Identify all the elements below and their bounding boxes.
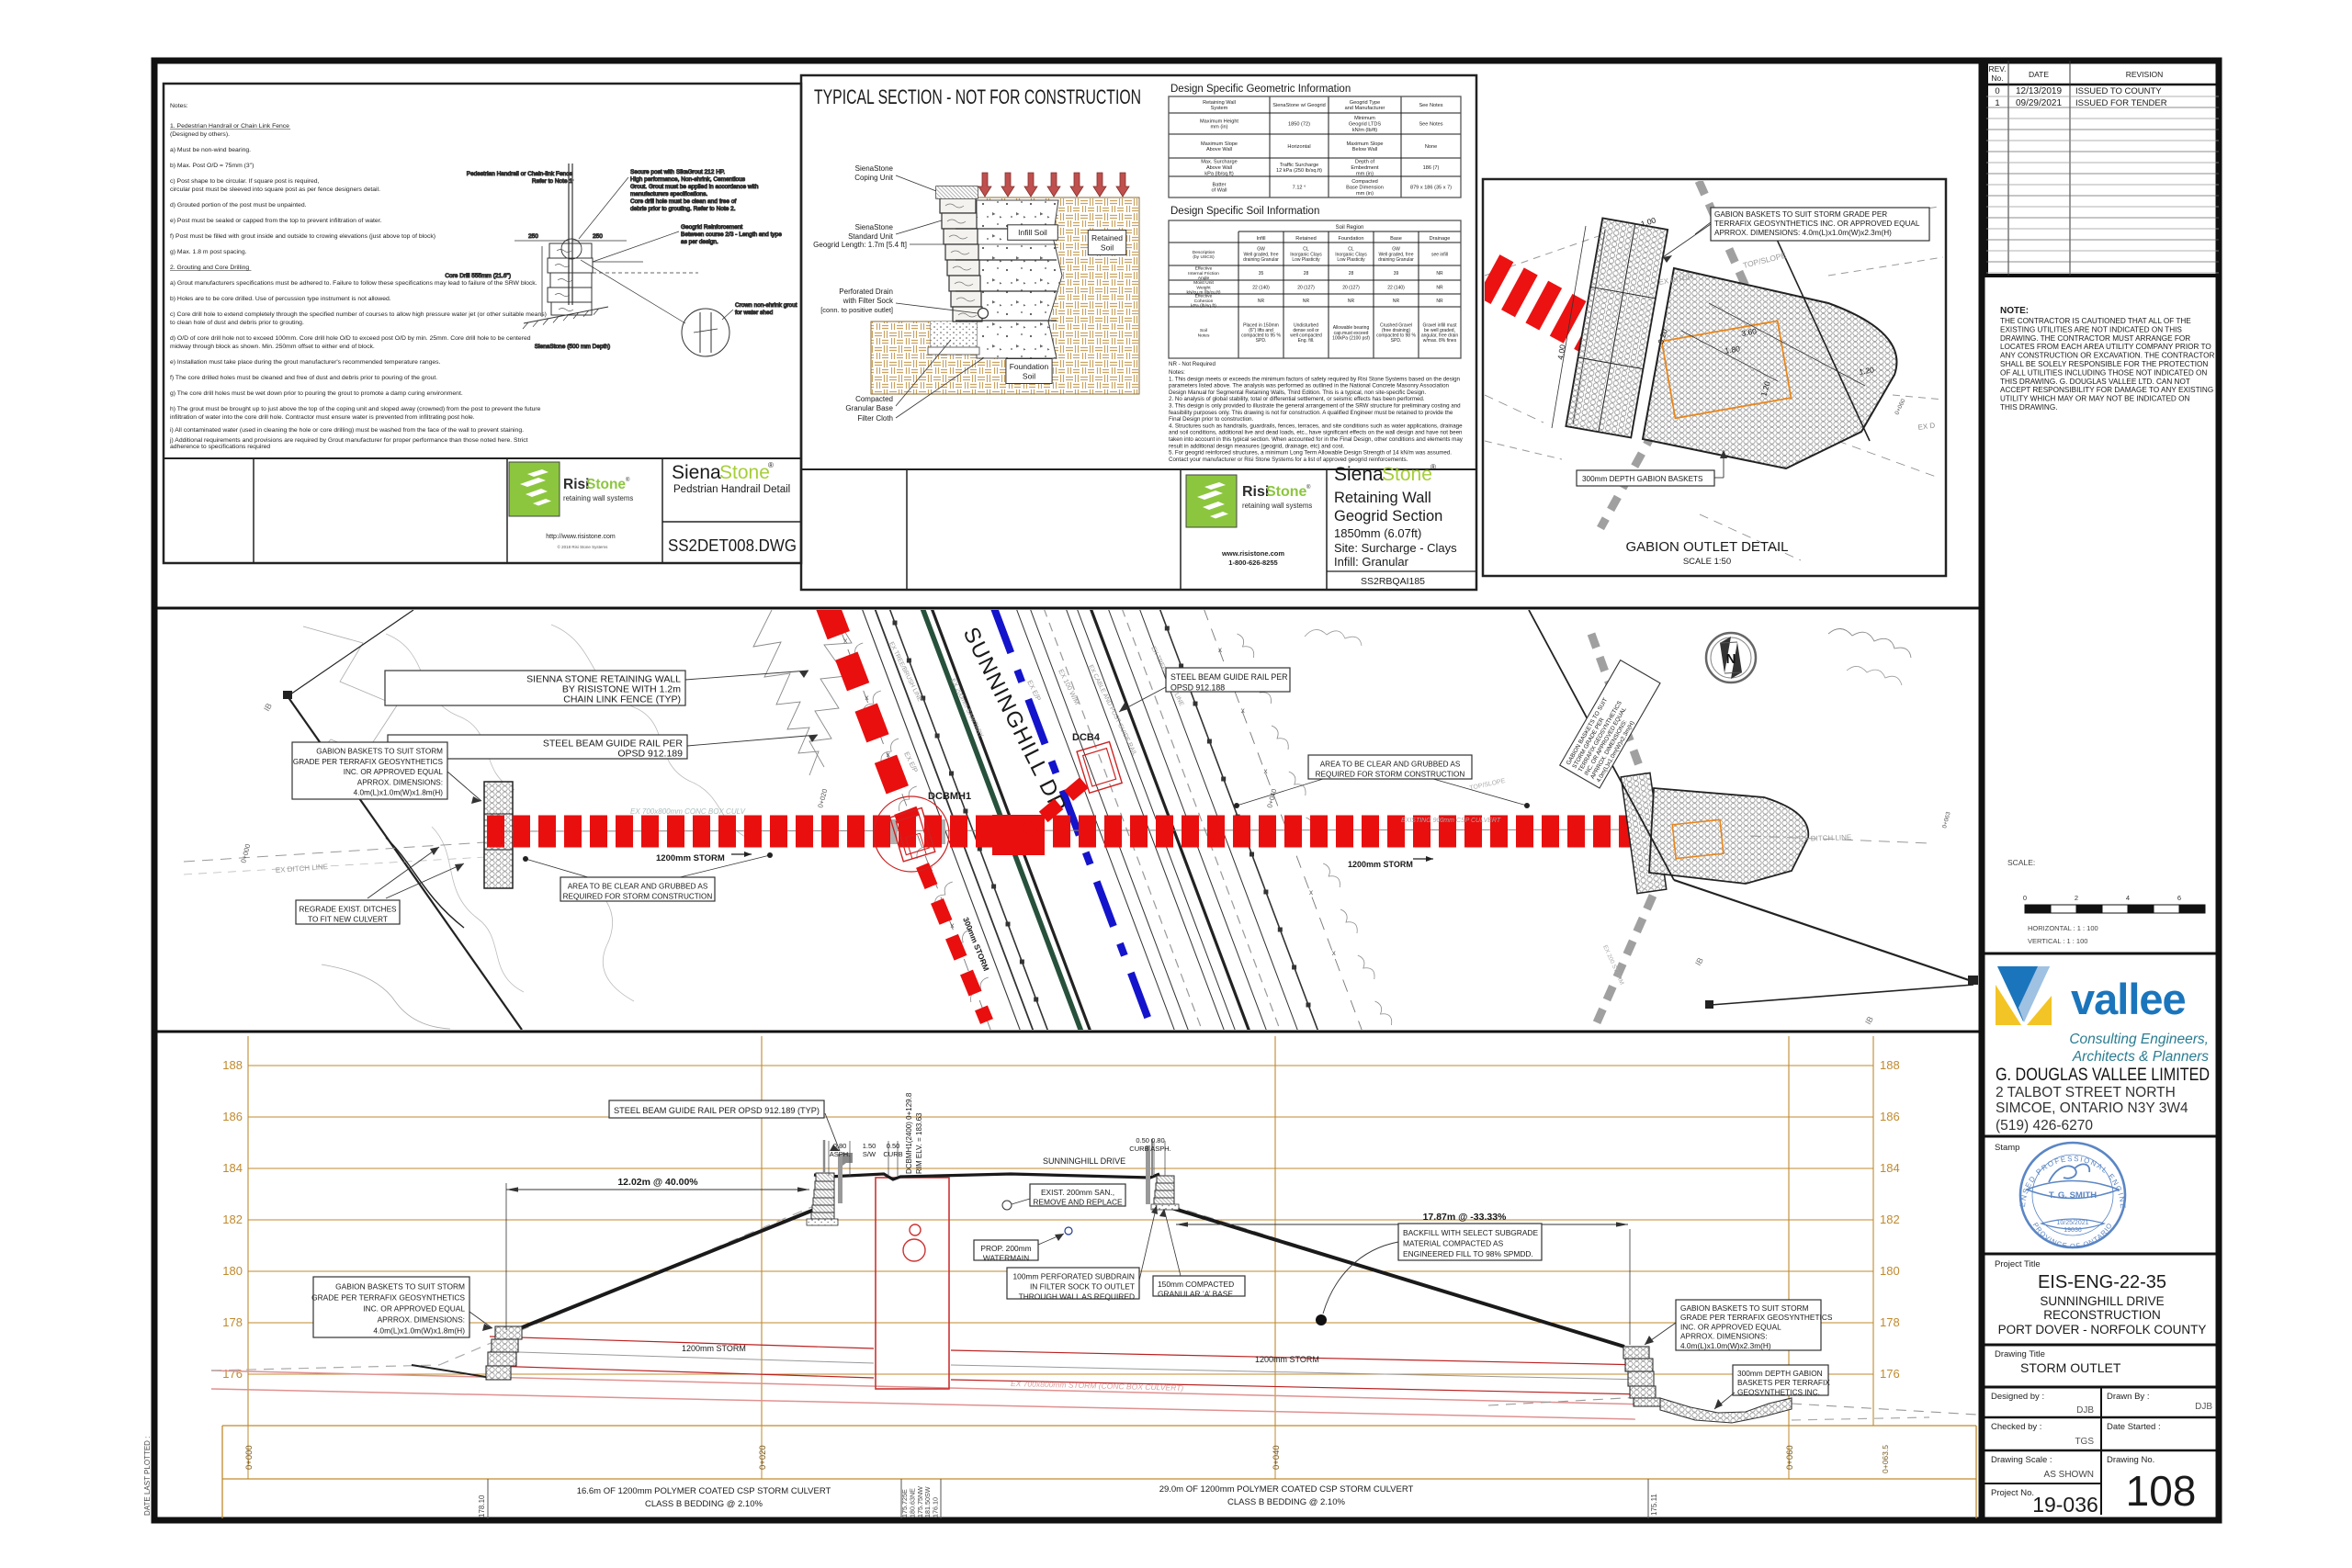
svg-text:c) Core drill hole to extend c: c) Core drill hole to extend completely …	[170, 311, 547, 318]
svg-text:0+000: 0+000	[244, 1445, 254, 1470]
svg-text:250: 250	[593, 233, 603, 240]
svg-text:Infill Soil: Infill Soil	[1018, 228, 1047, 237]
svg-text:manufacturers specifications.: manufacturers specifications.	[630, 191, 707, 197]
svg-text:DCB4: DCB4	[1072, 732, 1101, 743]
svg-text:BASKETS PER TERRAFIX: BASKETS PER TERRAFIX	[1737, 1378, 1830, 1387]
svg-text:midway through block as shown.: midway through block as shown. Min. 250m…	[170, 344, 375, 350]
svg-text:EXISTING 900mm CSP CULVERT: EXISTING 900mm CSP CULVERT	[1401, 818, 1501, 824]
svg-text:SienaStone: SienaStone	[855, 223, 894, 231]
svg-text:184: 184	[222, 1161, 243, 1175]
svg-text:Foundation: Foundation	[1010, 362, 1049, 371]
svg-text:20 (127): 20 (127)	[1342, 285, 1360, 290]
svg-text:f) The core drilled holes mus: f) The core drilled holes must be cleane…	[170, 375, 437, 381]
svg-text:Retained: Retained	[1295, 236, 1316, 242]
svg-text:Drawing Scale :: Drawing Scale :	[1991, 1455, 2052, 1465]
svg-text:ISSUED FOR TENDER: ISSUED FOR TENDER	[2075, 98, 2167, 108]
svg-text:REGRADE EXIST. DITCHES: REGRADE EXIST. DITCHES	[299, 906, 397, 914]
svg-text:a) Must be non-wind bearing.: a) Must be non-wind bearing.	[170, 147, 251, 153]
svg-text:0+063.5: 0+063.5	[1881, 1445, 1890, 1473]
svg-text:188: 188	[222, 1058, 243, 1072]
svg-text:180: 180	[1880, 1264, 1900, 1278]
svg-text:taken into account in this typ: taken into account in this typical secti…	[1169, 436, 1464, 443]
svg-text:Risi: Risi	[1242, 484, 1269, 500]
svg-text:Stone: Stone	[1382, 464, 1432, 485]
svg-text:feasibility purposes only. Th: feasibility purposes only. This drawing …	[1169, 410, 1453, 416]
svg-text:g) The core drill holes must b: g) The core drill holes must be wet down…	[170, 390, 463, 397]
svg-text:retaining wall systems: retaining wall systems	[1242, 502, 1312, 510]
svg-text:for water shed: for water shed	[735, 310, 774, 316]
svg-text:1.50: 1.50	[863, 1142, 876, 1150]
svg-text:STEEL BEAM GUIDE RAIL PER: STEEL BEAM GUIDE RAIL PER OPSD 912.189 (…	[614, 1106, 820, 1115]
svg-text:NR - Not Required: NR - Not Required	[1169, 361, 1216, 367]
svg-text:Grout. Grout must be applied: Grout. Grout must be applied in accordan…	[630, 184, 759, 190]
svg-text:NR: NR	[1393, 299, 1400, 304]
svg-text:EX 700x800mm CONC BOX CULV: EX 700x800mm CONC BOX CULV	[630, 807, 746, 816]
svg-text:SienaStone (500 mm Depth): SienaStone (500 mm Depth)	[535, 344, 610, 350]
svg-text:®: ®	[768, 461, 774, 469]
svg-text:Base: Base	[1390, 236, 1402, 242]
svg-text:adherence to specifications re: adherence to specifications required	[170, 444, 270, 450]
svg-text:Stone: Stone	[586, 477, 626, 492]
svg-text:Low Plasticity: Low Plasticity	[1337, 257, 1365, 263]
svg-text:Soil: Soil	[1200, 328, 1207, 333]
svg-text:WATERMAIN: WATERMAIN	[983, 1254, 1029, 1263]
svg-text:2: 2	[2075, 894, 2078, 902]
svg-text:184: 184	[1880, 1161, 1900, 1175]
svg-text:150mm COMPACTED: 150mm COMPACTED	[1158, 1280, 1234, 1289]
svg-text:250: 250	[528, 233, 538, 240]
svg-text:Core Drill 555mm (21.6"): Core Drill 555mm (21.6")	[445, 273, 511, 279]
svg-text:4.0m(L)x1.0m(W)x2.3m(H): 4.0m(L)x1.0m(W)x2.3m(H)	[1680, 1341, 1771, 1350]
svg-text:Depth of: Depth of	[1355, 160, 1375, 165]
svg-text:ACCEPT RESPONSIBILITY FOR D: ACCEPT RESPONSIBILITY FOR DAMAGE TO ANY …	[2000, 386, 2213, 394]
svg-text:Stone: Stone	[1266, 484, 1307, 500]
svg-text:186 (7): 186 (7)	[1423, 165, 1440, 171]
svg-text:SUNNINGHILL DRIVE: SUNNINGHILL DRIVE	[2040, 1294, 2164, 1308]
svg-text:17.87m @ -33.33%: 17.87m @ -33.33%	[1423, 1212, 1507, 1223]
svg-text:(by USCS): (by USCS)	[1193, 254, 1215, 260]
svg-text:Notes:: Notes:	[170, 103, 188, 109]
svg-text:176: 176	[1880, 1367, 1900, 1381]
svg-text:x: x	[1241, 706, 1245, 715]
svg-text:GABION BASKETS TO SUIT STO: GABION BASKETS TO SUIT STORM	[316, 748, 443, 756]
svg-text:19-036: 19-036	[2032, 1493, 2098, 1517]
svg-text:®: ®	[626, 477, 630, 483]
svg-text:THE CONTRACTOR IS CAUTIONED: THE CONTRACTOR IS CAUTIONED THAT ALL OF …	[2000, 317, 2191, 325]
svg-text:NR: NR	[1436, 271, 1443, 276]
svg-text:Design Specific Soil Informati: Design Specific Soil Information	[1170, 206, 1319, 217]
svg-text:Drainage: Drainage	[1430, 236, 1451, 242]
svg-text:see infill: see infill	[1431, 252, 1448, 257]
svg-text:Soil: Soil	[1023, 372, 1035, 381]
svg-text:186: 186	[222, 1110, 243, 1123]
svg-text:0+060: 0+060	[1785, 1445, 1795, 1470]
svg-text:kPa (lb/sq.ft): kPa (lb/sq.ft)	[1204, 171, 1234, 176]
svg-text:300mm DEPTH GABION BASKETS: 300mm DEPTH GABION BASKETS	[1582, 475, 1703, 483]
svg-text:178: 178	[222, 1315, 243, 1329]
svg-text:Eng. fill.: Eng. fill.	[1298, 338, 1315, 344]
svg-text:GRADE PER TERRAFIX GEOSYNTH: GRADE PER TERRAFIX GEOSYNTHETICS	[311, 1293, 465, 1303]
svg-text:b) Max. Post O/D = 75mm (3"): b) Max. Post O/D = 75mm (3")	[170, 163, 254, 169]
svg-text:DCBMH1: DCBMH1	[928, 791, 971, 802]
svg-text:Project No.: Project No.	[1991, 1488, 2034, 1498]
svg-text:Geogrid LTDS: Geogrid LTDS	[1349, 122, 1382, 128]
svg-text:DJB: DJB	[2195, 1402, 2212, 1412]
svg-text:Secure post with SikaGrout 212: Secure post with SikaGrout 212 HP.	[630, 169, 725, 175]
svg-text:Checked by :: Checked by :	[1991, 1422, 2041, 1432]
svg-text:Between course 2/3 - Length an: Between course 2/3 - Length and type	[681, 231, 782, 238]
svg-text:DJB: DJB	[2076, 1405, 2094, 1416]
svg-text:1200mm STORM: 1200mm STORM	[656, 853, 725, 863]
svg-text:175.11: 175.11	[1650, 1494, 1658, 1516]
svg-text:PROP. 200mm: PROP. 200mm	[980, 1244, 1031, 1253]
svg-text:22 (140): 22 (140)	[1387, 285, 1405, 290]
svg-text:mm (in): mm (in)	[1356, 171, 1374, 176]
svg-text:16.6m OF 1200mm POLYMER CO: 16.6m OF 1200mm POLYMER COATED CSP STORM…	[577, 1486, 831, 1496]
svg-text:®: ®	[1430, 463, 1436, 471]
svg-text:Compacted: Compacted	[1351, 179, 1378, 185]
svg-text:Coping Unit: Coping Unit	[854, 174, 894, 182]
svg-text:TYPICAL SECTION - NOT FOR CONS: TYPICAL SECTION - NOT FOR CONSTRUCTION	[814, 85, 1141, 108]
svg-text:Weight: Weight	[1196, 285, 1211, 290]
svg-text:infiltration of water into the: infiltration of water into the core dril…	[170, 414, 475, 421]
svg-text:G. DOUGLAS VALLEE LIMITED: G. DOUGLAS VALLEE LIMITED	[1996, 1065, 2210, 1085]
svg-text:DATE LAST PLOTTED :: DATE LAST PLOTTED :	[143, 1437, 152, 1516]
svg-text:to clean hole of dust and debr: to clean hole of dust and debris prior t…	[170, 320, 304, 326]
svg-text:12 kPa (250 lb/sq.ft): 12 kPa (250 lb/sq.ft)	[1276, 168, 1322, 174]
svg-text:(Designed by others).: (Designed by others).	[170, 131, 230, 138]
svg-text:6: 6	[2177, 894, 2181, 902]
svg-text:UTILITY WHICH MAY OR MAY: UTILITY WHICH MAY OR MAY NOT BE INDICATE…	[2000, 395, 2189, 403]
svg-text:178.10: 178.10	[478, 1495, 486, 1517]
svg-text:879 x 186 (35 x 7): 879 x 186 (35 x 7)	[1410, 186, 1452, 191]
svg-text:CHAIN LINK FENCE (TYP): CHAIN LINK FENCE (TYP)	[563, 694, 681, 705]
svg-text:28: 28	[1304, 271, 1309, 276]
svg-text:of Wall: of Wall	[1212, 188, 1227, 194]
svg-text:SCALE 1:50: SCALE 1:50	[1683, 557, 1731, 567]
svg-text:GABION BASKETS TO SUIT STO: GABION BASKETS TO SUIT STORM	[1680, 1303, 1809, 1313]
svg-text:See Notes: See Notes	[1419, 103, 1442, 108]
svg-text:0: 0	[2023, 894, 2027, 902]
svg-text:29.0m OF 1200mm POLYMER CO: 29.0m OF 1200mm POLYMER COATED CSP STORM…	[1159, 1484, 1414, 1495]
svg-text:CURB: CURB	[883, 1150, 902, 1158]
svg-text:See Notes: See Notes	[1419, 122, 1442, 128]
svg-text:Stone: Stone	[719, 462, 770, 483]
svg-text:Base Dimension: Base Dimension	[1346, 186, 1384, 191]
svg-text:178: 178	[1880, 1315, 1900, 1329]
svg-text:4: 4	[2126, 894, 2130, 902]
svg-text:Above Wall: Above Wall	[1206, 165, 1232, 171]
svg-text:g) Max. 1.8 m post spacing.: g) Max. 1.8 m post spacing.	[170, 249, 247, 255]
svg-text:w/max. 8% fines: w/max. 8% fines	[1423, 338, 1457, 344]
svg-text:SUNNINGHILL DRIVE: SUNNINGHILL DRIVE	[1043, 1156, 1125, 1166]
svg-text:Cohesion: Cohesion	[1194, 299, 1214, 304]
svg-text:Notes:: Notes:	[1169, 369, 1185, 376]
svg-text:Siena: Siena	[1334, 464, 1384, 485]
svg-text:Geogrid Reinforcement: Geogrid Reinforcement	[681, 224, 742, 231]
svg-text:Traffic Surcharge: Traffic Surcharge	[1280, 163, 1319, 168]
svg-text:SPD.: SPD.	[1256, 338, 1267, 344]
svg-text:x: x	[1218, 646, 1222, 654]
svg-text:SS2RBQAI185: SS2RBQAI185	[1361, 576, 1425, 587]
svg-text:176.10: 176.10	[932, 1497, 940, 1517]
svg-text:www.risistone.com: www.risistone.com	[1221, 549, 1284, 558]
svg-text:Pedstrian Handrail Detail: Pedstrian Handrail Detail	[673, 484, 790, 495]
svg-text:OPSD 912.189: OPSD 912.189	[617, 749, 683, 760]
svg-text:APRROX. DIMENSIONS: 4.0m(L: APRROX. DIMENSIONS: 4.0m(L)x1.0m(W)x2.3m…	[1714, 229, 1892, 237]
svg-text:d) Grouted portion of the post: d) Grouted portion of the post must be u…	[170, 202, 307, 209]
svg-text:Description: Description	[1193, 250, 1216, 255]
svg-text:NR: NR	[1258, 299, 1265, 304]
svg-text:Drawn By :: Drawn By :	[2107, 1392, 2149, 1402]
svg-text:GRADE PER TERRAFIX GEOSYNTH: GRADE PER TERRAFIX GEOSYNTHETICS	[293, 758, 444, 766]
svg-text:No.: No.	[1991, 73, 2003, 83]
svg-text:REQUIRED FOR STORM CONSTRUC: REQUIRED FOR STORM CONSTRUCTION	[1316, 771, 1465, 779]
svg-text:Compacted: Compacted	[855, 395, 893, 403]
svg-text:Contact your manufacturer or R: Contact your manufacturer or Risi Stone …	[1169, 457, 1408, 463]
svg-text:S/W: S/W	[863, 1150, 876, 1158]
svg-text:Designed by :: Designed by :	[1991, 1392, 2044, 1402]
svg-text:3. This design is only provide: 3. This design is only provided to illus…	[1169, 403, 1461, 410]
svg-text:Maximum Slope: Maximum Slope	[1346, 141, 1383, 147]
svg-text:09/29/2021: 09/29/2021	[2016, 98, 2062, 108]
svg-text:Minimum: Minimum	[1354, 116, 1375, 121]
svg-text:5. For geogrid reinforced stru: 5. For geogrid reinforced structures, a …	[1169, 450, 1452, 457]
svg-text:NR: NR	[1348, 299, 1355, 304]
svg-text:Architects & Planners: Architects & Planners	[2072, 1049, 2209, 1065]
svg-text:ANY CONSTRUCTION OR EXCAVAT: ANY CONSTRUCTION OR EXCAVATION. THE CONT…	[2000, 352, 2214, 360]
svg-text:28: 28	[1349, 271, 1354, 276]
svg-text:188: 188	[1880, 1058, 1900, 1072]
svg-text:kN/m (lb/ft): kN/m (lb/ft)	[1352, 128, 1377, 133]
svg-text:SienaStone: SienaStone	[855, 164, 894, 173]
svg-text:2. Grouting and Core Drilling: 2. Grouting and Core Drilling	[170, 265, 249, 271]
svg-text:MATERIAL COMPACTED AS: MATERIAL COMPACTED AS	[1403, 1239, 1504, 1248]
svg-text:RECONSTRUCTION: RECONSTRUCTION	[2043, 1308, 2161, 1322]
svg-text:EIS-ENG-22-35: EIS-ENG-22-35	[2038, 1272, 2166, 1292]
svg-text:System: System	[1211, 106, 1228, 111]
svg-text:19036: 19036	[2064, 1227, 2082, 1234]
svg-text:with Filter Sock: with Filter Sock	[842, 297, 894, 305]
svg-text:SHALL BE SOLELY RESPONSIBLE: SHALL BE SOLELY RESPONSIBLE FOR THE PROT…	[2000, 360, 2208, 368]
svg-text:1-800-626-8255: 1-800-626-8255	[1228, 558, 1277, 567]
svg-text:Moist Unit: Moist Unit	[1193, 280, 1214, 286]
svg-text:VERTICAL : 1 : 100: VERTICAL : 1 : 100	[2028, 937, 2087, 945]
svg-text:0: 0	[1995, 86, 1999, 96]
svg-text:Max. Surcharge: Max. Surcharge	[1201, 160, 1237, 165]
svg-text:4. Structures such as handrail: 4. Structures such as handrails, guardra…	[1169, 423, 1463, 429]
svg-text:Foundation: Foundation	[1339, 236, 1364, 242]
svg-text:GABION BASKETS TO SUIT STO: GABION BASKETS TO SUIT STORM	[335, 1282, 465, 1292]
svg-text:1: 1	[1995, 98, 1999, 108]
svg-text:ASPH.: ASPH.	[830, 1150, 851, 1158]
svg-text:INC. OR APPROVED EQUAL: INC. OR APPROVED EQUAL	[344, 768, 444, 776]
svg-text:7.12 °: 7.12 °	[1293, 186, 1306, 191]
svg-text:INC. OR APPROVED EQUAL: INC. OR APPROVED EQUAL	[1680, 1322, 1781, 1331]
svg-text:d) O/D of core drill hole not: d) O/D of core drill hole not to exceed …	[170, 335, 531, 342]
svg-text:Pedestrian Handrail or Chain-l: Pedestrian Handrail or Chain-link Fence	[467, 171, 573, 177]
svg-text:retaining wall systems: retaining wall systems	[563, 494, 633, 502]
svg-text:SS2DET008.DWG: SS2DET008.DWG	[668, 536, 797, 555]
svg-text:as per design.: as per design.	[681, 239, 718, 245]
svg-text:REMOVE AND REPLACE: REMOVE AND REPLACE	[1033, 1198, 1123, 1207]
svg-text:Notes: Notes	[1198, 333, 1210, 338]
svg-text:HORIZONTAL : 1 : 100: HORIZONTAL : 1 : 100	[2028, 924, 2098, 932]
svg-text:2 TALBOT STREET NORTH: 2 TALBOT STREET NORTH	[1996, 1085, 2176, 1100]
svg-text:i) All contaminated water (use: i) All contaminated water (used in clean…	[170, 427, 524, 434]
svg-text:4.0m(L)x1.0m(W)x1.8m(H): 4.0m(L)x1.0m(W)x1.8m(H)	[373, 1326, 465, 1336]
svg-text:Maximum Slope: Maximum Slope	[1201, 141, 1238, 147]
svg-text:Angle: Angle	[1198, 276, 1210, 281]
svg-text:35: 35	[1259, 271, 1264, 276]
svg-text:IN FILTER SOCK TO OUTLET: IN FILTER SOCK TO OUTLET	[1030, 1282, 1135, 1292]
svg-text:2. No analysis of global stabi: 2. No analysis of global stability, tota…	[1169, 396, 1425, 402]
svg-text:DRAWING. THE CONTRACTOR MUS: DRAWING. THE CONTRACTOR MUST ARRANGE FOR	[2000, 334, 2190, 343]
svg-text:Geogrid Type: Geogrid Type	[1350, 100, 1380, 106]
svg-text:Embedment: Embedment	[1351, 165, 1379, 171]
svg-text:Filter Cloth: Filter Cloth	[857, 414, 893, 423]
svg-text:22 (140): 22 (140)	[1252, 285, 1270, 290]
svg-text:Drawing No.: Drawing No.	[2107, 1455, 2154, 1465]
svg-text:182: 182	[1880, 1213, 1900, 1226]
svg-text:Core drill hole must be clean: Core drill hole must be clean and free o…	[630, 198, 736, 205]
svg-text:Horizontal: Horizontal	[1287, 144, 1310, 150]
svg-text:186: 186	[1880, 1110, 1900, 1123]
svg-text:NR: NR	[1303, 299, 1310, 304]
svg-text:APRROX. DIMENSIONS:: APRROX. DIMENSIONS:	[378, 1315, 465, 1325]
svg-text:THIS DRAWING. G. DOUGLAS V: THIS DRAWING. G. DOUGLAS VALLEE LTD. CAN…	[2000, 378, 2190, 386]
svg-text:Retained: Retained	[1091, 233, 1123, 243]
svg-text:Soil: Soil	[1101, 243, 1114, 253]
svg-text:x: x	[1264, 767, 1268, 775]
svg-text:Infill: Granular: Infill: Granular	[1334, 555, 1409, 569]
svg-text:Low Plasticity: Low Plasticity	[1292, 257, 1320, 263]
svg-text:DCBMH1(2400) 0+129.8: DCBMH1(2400) 0+129.8	[905, 1092, 913, 1174]
svg-text:ISSUED TO COUNTY: ISSUED TO COUNTY	[2075, 86, 2162, 96]
svg-text:AREA TO BE CLEAR AND GRUB: AREA TO BE CLEAR AND GRUBBED AS	[1320, 761, 1461, 769]
svg-text:NR: NR	[1436, 299, 1443, 304]
svg-text:j) Additional requirements and: j) Additional requirements and provision…	[169, 437, 528, 444]
svg-text:CLASS B BEDDING @ 2.10%: CLASS B BEDDING @ 2.10%	[645, 1499, 763, 1509]
svg-text:DATE: DATE	[2029, 70, 2049, 79]
svg-text:f) Post must be filled with gr: f) Post must be filled with grout inside…	[170, 233, 435, 240]
svg-text:mm (in): mm (in)	[1356, 191, 1374, 197]
svg-text:APRROX. DIMENSIONS:: APRROX. DIMENSIONS:	[357, 778, 443, 786]
svg-text:176: 176	[222, 1367, 243, 1381]
svg-text:OF ALL UTILITIES INCLUDING: OF ALL UTILITIES INCLUDING THOSE NOT IND…	[2000, 368, 2207, 377]
svg-text:x: x	[865, 694, 869, 702]
svg-text:x: x	[951, 921, 955, 930]
svg-text:NR: NR	[1436, 285, 1443, 290]
svg-text:NOTE:: NOTE:	[2000, 306, 2029, 316]
svg-text:EXISTING UTILITIES ARE NOT: EXISTING UTILITIES ARE NOT INDICATED ON …	[2000, 325, 2182, 333]
svg-text:Standard Unit: Standard Unit	[848, 232, 894, 241]
svg-text:e) Post must be sealed or capp: e) Post must be sealed or capped from th…	[170, 218, 382, 224]
svg-text:Perforated Drain: Perforated Drain	[839, 288, 893, 296]
svg-text:REV.: REV.	[1988, 64, 2006, 73]
svg-text:1200mm STORM: 1200mm STORM	[1255, 1355, 1319, 1364]
svg-text:a) Grout manufacturers specifi: a) Grout manufacturers specifications mu…	[170, 280, 537, 287]
svg-text:Effective: Effective	[1195, 266, 1213, 272]
svg-text:SPD.: SPD.	[1391, 338, 1402, 344]
svg-text:4.0m(L)x1.0m(W)x1.8m(H): 4.0m(L)x1.0m(W)x1.8m(H)	[354, 789, 444, 797]
svg-text:20 (127): 20 (127)	[1297, 285, 1315, 290]
svg-text:1200mm STORM: 1200mm STORM	[1348, 860, 1413, 869]
svg-text:INC. OR APPROVED EQUAL: INC. OR APPROVED EQUAL	[363, 1304, 465, 1314]
svg-text:GABION BASKETS TO SUIT STO: GABION BASKETS TO SUIT STORM GRADE PER	[1714, 210, 1887, 219]
svg-text:SIMCOE, ONTARIO N3Y 3W4: SIMCOE, ONTARIO N3Y 3W4	[1996, 1100, 2188, 1116]
svg-text:Project Title: Project Title	[1995, 1259, 2041, 1269]
svg-text:STORM OUTLET: STORM OUTLET	[2020, 1360, 2121, 1375]
svg-text:h) The grout must be brought u: h) The grout must be brought up to just …	[170, 406, 541, 412]
svg-text:1. Pedestrian Handrail or Chai: 1. Pedestrian Handrail or Chain Link Fen…	[170, 123, 289, 130]
svg-text:result in additional design me: result in additional design measures (ge…	[1169, 443, 1345, 449]
svg-text:vallee: vallee	[2071, 975, 2186, 1023]
svg-text:GEOSYNTHETICS INC.: GEOSYNTHETICS INC.	[1737, 1387, 1820, 1396]
svg-text:Geogrid Section: Geogrid Section	[1334, 508, 1442, 525]
svg-text:BACKFILL WITH SELECT SUBGRA: BACKFILL WITH SELECT SUBGRADE	[1403, 1228, 1538, 1237]
svg-text:SCALE:: SCALE:	[2007, 858, 2035, 867]
svg-text:10/25/2021: 10/25/2021	[2056, 1220, 2088, 1226]
svg-text:0+020: 0+020	[758, 1445, 768, 1470]
svg-text:100kPa (2100 psf): 100kPa (2100 psf)	[1332, 335, 1370, 341]
svg-text:REQUIRED FOR STORM CONSTRUC: REQUIRED FOR STORM CONSTRUCTION	[563, 893, 713, 901]
svg-text:kPa (lb/sq.ft): kPa (lb/sq.ft)	[1191, 303, 1216, 309]
svg-text:Final Design prior to construc: Final Design prior to construction.	[1169, 416, 1253, 423]
svg-text:Granular Base: Granular Base	[845, 404, 893, 412]
svg-text:1850 (72): 1850 (72)	[1288, 122, 1310, 128]
svg-text:Refer to Note 1: Refer to Note 1	[532, 178, 572, 185]
svg-text:circular post must be sleeved: circular post must be sleeved into squar…	[170, 186, 380, 193]
svg-text:e) Installation must take plac: e) Installation must take place during t…	[170, 359, 441, 366]
svg-text:300mm DEPTH GABION: 300mm DEPTH GABION	[1737, 1369, 1823, 1378]
svg-text:Date Started :: Date Started :	[2107, 1422, 2161, 1432]
svg-text:®: ®	[1306, 484, 1311, 491]
svg-text:x: x	[1332, 949, 1336, 957]
svg-text:x: x	[1309, 888, 1313, 897]
svg-text:Site: Surcharge - Clays: Site: Surcharge - Clays	[1334, 541, 1457, 555]
svg-text:http://www.risistone.com: http://www.risistone.com	[546, 534, 616, 540]
svg-text:CURB ASPH.: CURB ASPH.	[1129, 1145, 1170, 1153]
svg-text:(519) 426-6270: (519) 426-6270	[1996, 1118, 2093, 1134]
svg-text:Drawing Title: Drawing Title	[1995, 1349, 2045, 1359]
svg-text:Retaining Wall: Retaining Wall	[1334, 490, 1431, 506]
svg-text:Internal Friction: Internal Friction	[1188, 271, 1219, 276]
svg-text:GRADE PER TERRAFIX GEOSYNTH: GRADE PER TERRAFIX GEOSYNTHETICS	[1680, 1313, 1833, 1322]
svg-text:108: 108	[2126, 1467, 2197, 1515]
svg-text:EXIST. 200mm SAN.,: EXIST. 200mm SAN.,	[1041, 1188, 1114, 1197]
svg-text:REVISION: REVISION	[2126, 70, 2164, 79]
svg-text:180: 180	[222, 1264, 243, 1278]
svg-text:PORT DOVER - NORFOLK COUNTY: PORT DOVER - NORFOLK COUNTY	[1998, 1323, 2207, 1337]
svg-text:and Manufacturer: and Manufacturer	[1345, 106, 1385, 111]
svg-text:© 2018 Risi Stone Systems: © 2018 Risi Stone Systems	[558, 544, 609, 549]
svg-text:draining Granular: draining Granular	[1243, 257, 1279, 263]
svg-text:draining Granular: draining Granular	[1378, 257, 1414, 263]
svg-text:Consulting Engineers,: Consulting Engineers,	[2069, 1032, 2209, 1047]
svg-text:and soil conditions, additiona: and soil conditions, additional live and…	[1169, 430, 1463, 436]
svg-text:Crown non-shrink grout: Crown non-shrink grout	[735, 302, 797, 309]
svg-text:39: 39	[1394, 271, 1399, 276]
svg-text:Design Specific Geometric Info: Design Specific Geometric Information	[1170, 84, 1351, 95]
svg-text:SienaStone w/ Geogrid: SienaStone w/ Geogrid	[1272, 103, 1326, 108]
svg-text:STEEL BEAM GUIDE RAIL PER: STEEL BEAM GUIDE RAIL PER	[1170, 672, 1287, 682]
svg-text:AREA TO BE CLEAR AND GRUB: AREA TO BE CLEAR AND GRUBBED AS	[568, 883, 708, 891]
svg-text:0.50: 0.50	[887, 1142, 900, 1150]
svg-text:182: 182	[222, 1213, 243, 1226]
svg-text:APRROX. DIMENSIONS:: APRROX. DIMENSIONS:	[1680, 1332, 1768, 1341]
svg-text:ENGINEERED FILL TO 98% SPM: ENGINEERED FILL TO 98% SPMDD.	[1403, 1249, 1533, 1258]
